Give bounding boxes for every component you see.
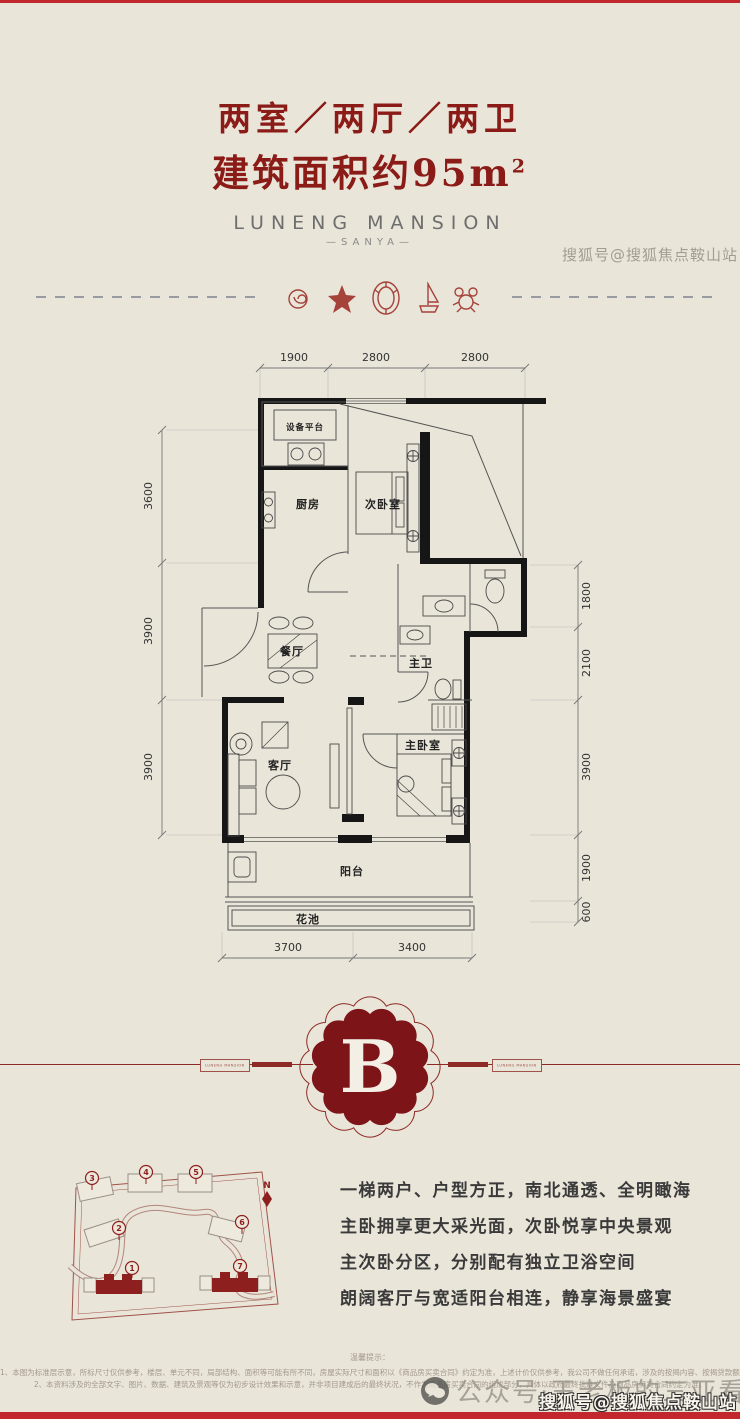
sailboat-icon — [420, 283, 438, 312]
dim-label: 2800 — [461, 351, 489, 364]
room-labels: 设备平台 厨房 次卧室 餐厅 主卫 客厅 主卧室 阳台 花池 — [267, 422, 441, 926]
dim-label: 3900 — [142, 753, 155, 781]
dim-label: 3600 — [142, 482, 155, 510]
feature-line: 主次卧分区，分别配有独立卫浴空间 — [340, 1248, 736, 1273]
dim-label: 1900 — [280, 351, 308, 364]
dim-label: 1900 — [580, 854, 593, 882]
svg-text:4: 4 — [143, 1168, 149, 1177]
dim-label: 3900 — [142, 617, 155, 645]
site-map: 3 4 5 2 6 1 7 N — [62, 1158, 290, 1330]
ribbon-bar-right — [448, 1062, 488, 1067]
starfish-icon — [328, 285, 356, 313]
divider-dash-right — [512, 296, 712, 298]
bottom-red-bar — [0, 1412, 740, 1419]
svg-text:2: 2 — [116, 1224, 122, 1233]
top-red-line — [0, 0, 740, 3]
dim-label: 1800 — [580, 582, 593, 610]
room-label-master-bath: 主卫 — [409, 656, 433, 670]
area-text: 建筑面积约95m — [212, 151, 512, 195]
ribbon-right-label: LUNENG MANSION — [497, 1063, 536, 1067]
area-subtitle: 建筑面积约95m2 — [0, 143, 740, 197]
divider-dash-left — [36, 296, 260, 298]
ribbon-left: LUNENG MANSION — [200, 1059, 250, 1072]
feature-line: 主卧拥享更大采光面，次卧悦享中央景观 — [340, 1212, 736, 1237]
ribbon-right: LUNENG MANSION — [492, 1059, 542, 1072]
floorplan: 1900 2800 2800 3600 3900 3900 1800 2100 … — [140, 340, 600, 980]
room-label-bedroom2: 次卧室 — [365, 497, 401, 511]
dim-label: 3700 — [274, 941, 302, 954]
highlighted-buildings — [96, 1272, 258, 1294]
room-label-flower-bed: 花池 — [296, 912, 320, 926]
north-indicator: N — [262, 1181, 272, 1207]
feature-text: 一梯两户、户型方正，南北通透、全明瞰海 主卧拥享更大采光面，次卧悦享中央景观 主… — [340, 1176, 736, 1320]
room-label-dining: 餐厅 — [279, 644, 304, 658]
spiral-shell-icon — [289, 290, 307, 308]
disclaimer-title: 温馨提示： — [0, 1352, 740, 1363]
room-label-kitchen: 厨房 — [296, 497, 320, 511]
svg-text:3: 3 — [89, 1174, 95, 1183]
plan-structure — [202, 397, 523, 930]
watermark-top-right: 搜狐号@搜狐焦点鞍山站 — [562, 244, 738, 265]
svg-text:1: 1 — [129, 1264, 135, 1273]
crab-icon — [453, 288, 479, 312]
svg-text:N: N — [263, 1181, 271, 1191]
unit-badge: B — [295, 992, 445, 1142]
dim-label: 3400 — [398, 941, 426, 954]
ribbon-left-label: LUNENG MANSION — [205, 1063, 244, 1067]
room-label-living: 客厅 — [267, 758, 292, 772]
ribbon-bar-left — [252, 1062, 292, 1067]
walls — [222, 398, 546, 843]
svg-text:7: 7 — [237, 1262, 243, 1271]
brand-logo: LUNENG MANSION — [0, 212, 740, 234]
dim-label: 600 — [580, 902, 593, 923]
dim-label: 2800 — [362, 351, 390, 364]
dim-label: 3900 — [580, 753, 593, 781]
dim-labels: 1900 2800 2800 3600 3900 3900 1800 2100 … — [142, 351, 593, 954]
svg-text:5: 5 — [193, 1168, 199, 1177]
svg-text:6: 6 — [239, 1218, 245, 1227]
area-sup: 2 — [512, 156, 528, 178]
page-title: 两室／两厅／两卫 — [0, 92, 740, 140]
room-label-master-bedroom: 主卧室 — [405, 738, 441, 752]
feature-line: 一梯两户、户型方正，南北通透、全明瞰海 — [340, 1176, 736, 1201]
watermark-bottom-right: 搜狐号@搜狐焦点鞍山站 — [539, 1388, 737, 1413]
poster-page: 两室／两厅／两卫 建筑面积约95m2 LUNENG MANSION —SANYA… — [0, 0, 740, 1419]
room-label-balcony: 阳台 — [340, 864, 364, 878]
badge-letter: B — [340, 1024, 401, 1109]
dim-label: 2100 — [580, 649, 593, 677]
feature-line: 朗阔客厅与宽适阳台相连，静享海景盛宴 — [340, 1284, 736, 1309]
wechat-icon — [420, 1376, 450, 1406]
clam-shell-icon — [373, 282, 399, 314]
room-label-equipment: 设备平台 — [286, 422, 324, 433]
divider-icons — [276, 275, 486, 319]
